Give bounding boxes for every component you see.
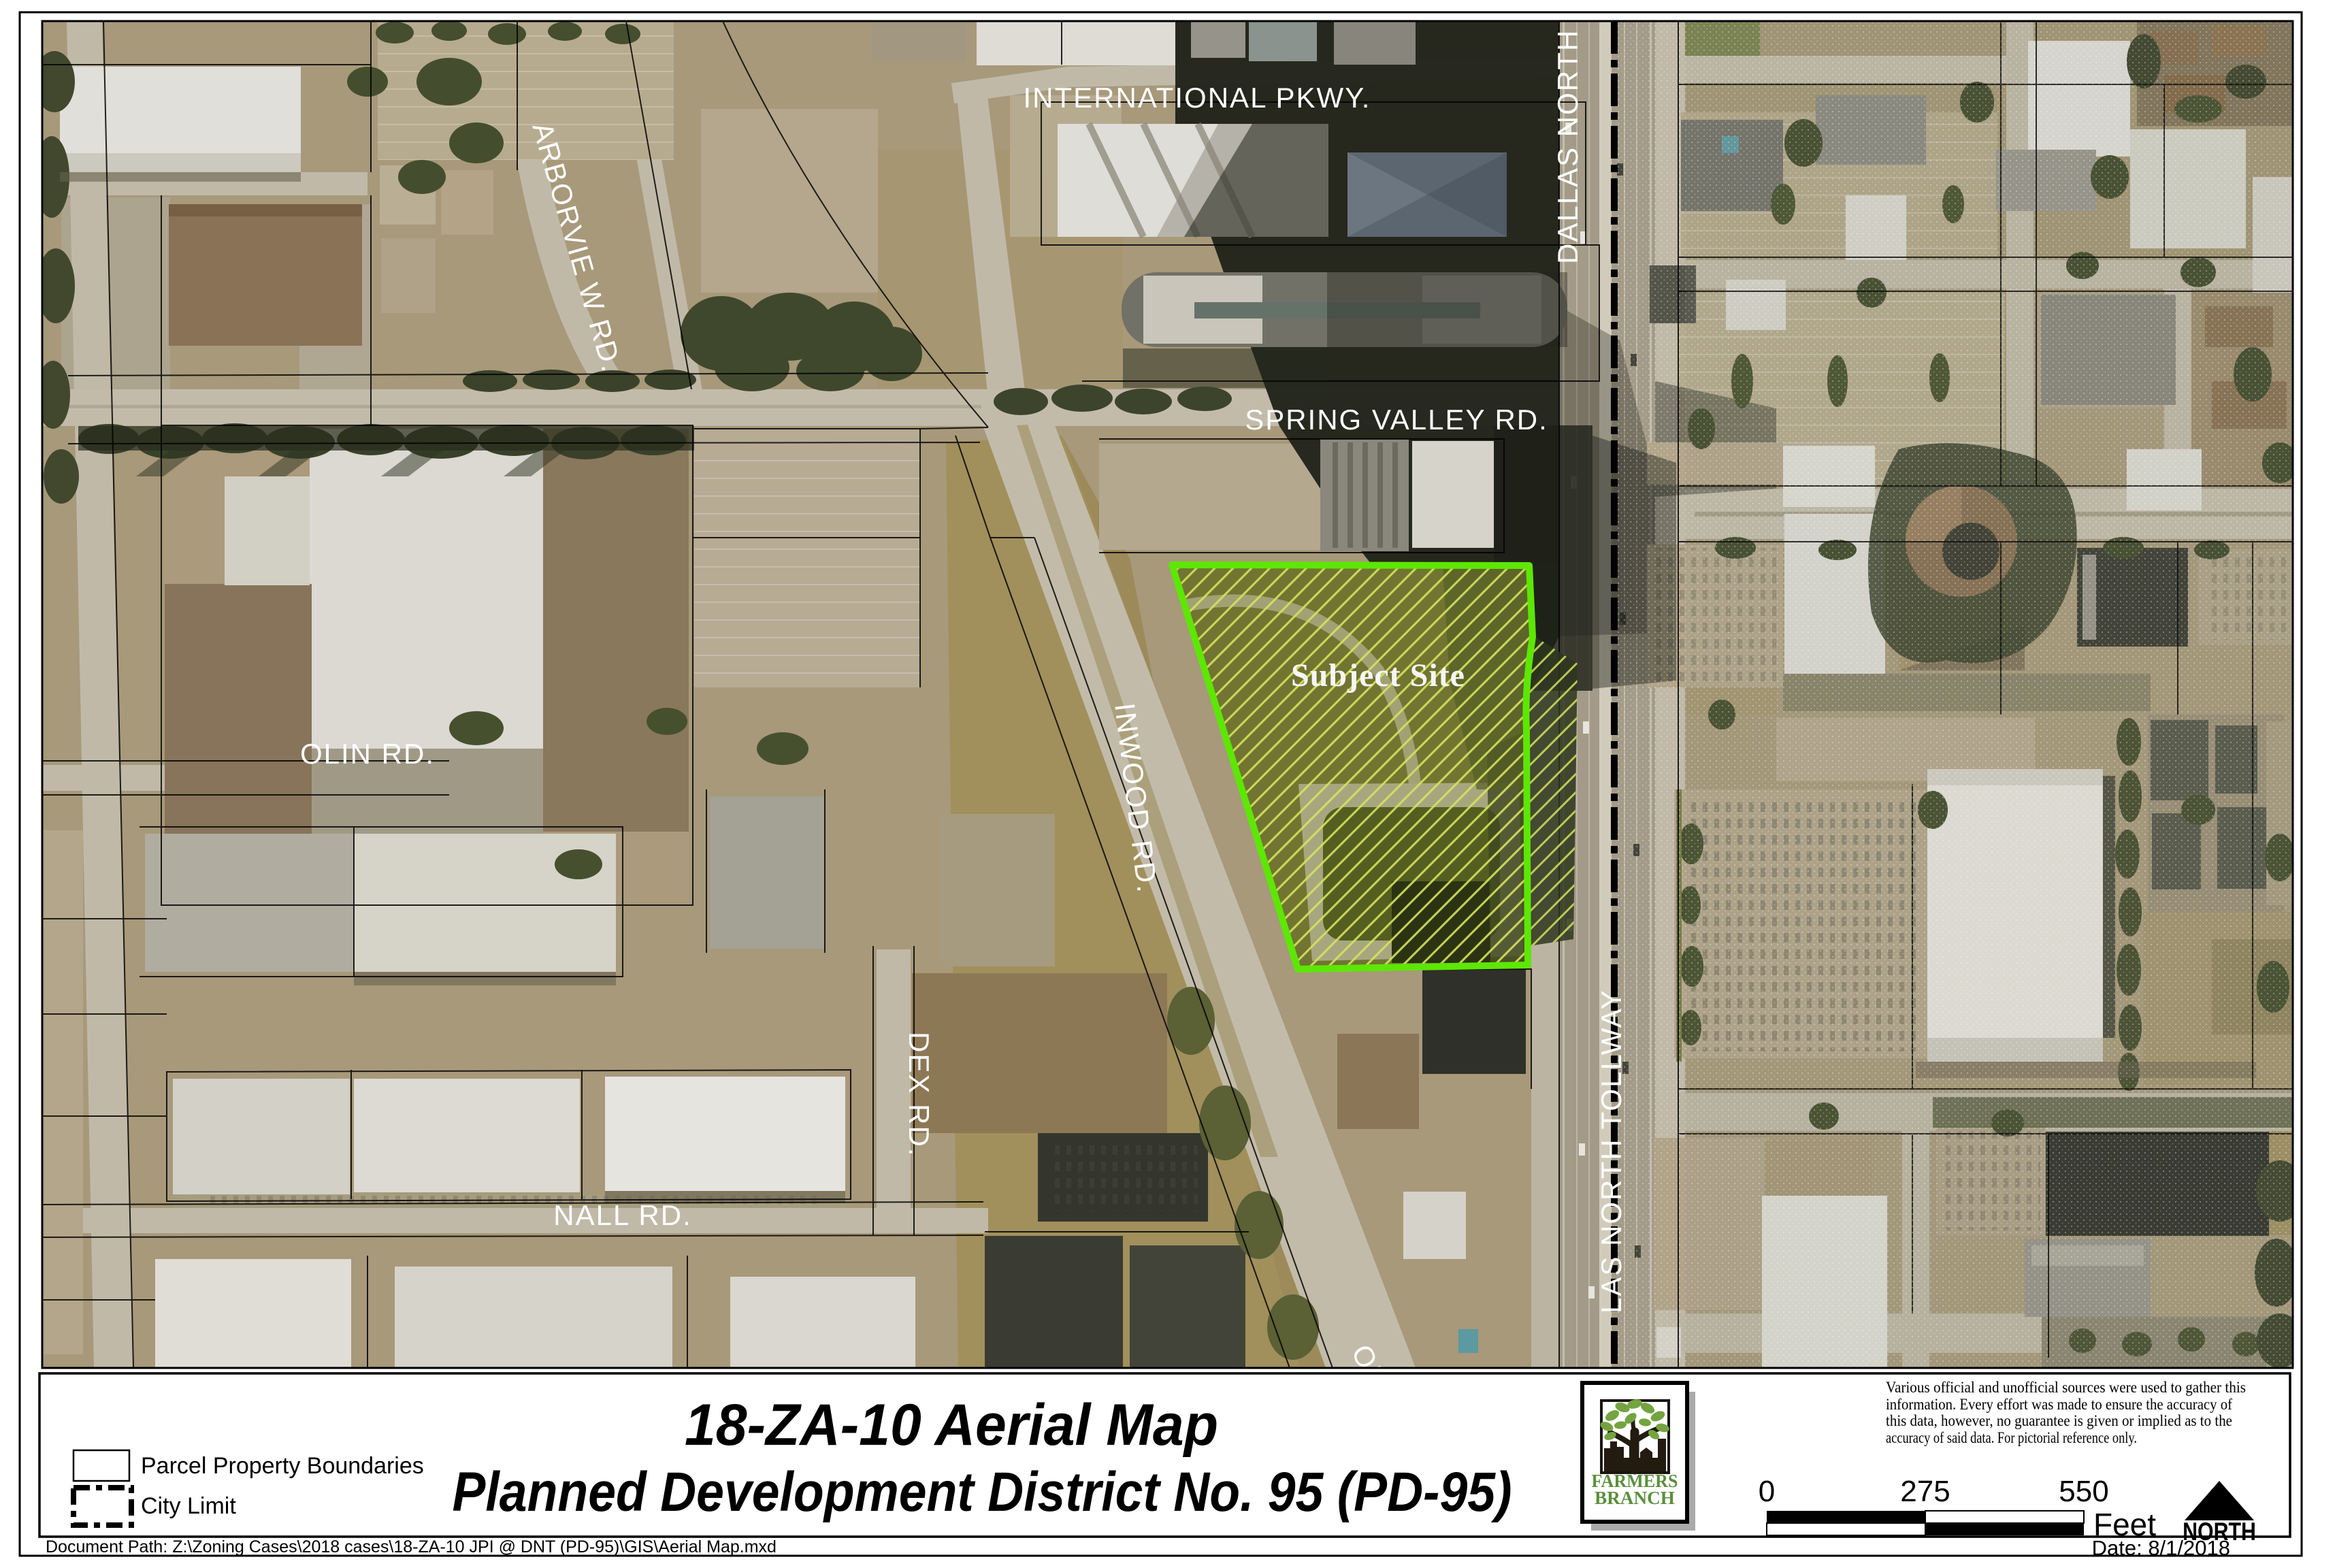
svg-text:NALL RD.: NALL RD. — [553, 1199, 692, 1231]
svg-text:550: 550 — [2059, 1475, 2108, 1508]
svg-text:18-ZA-10 Aerial Map: 18-ZA-10 Aerial Map — [685, 1392, 1218, 1458]
svg-text:Document Path: Z:\Zoning Cases: Document Path: Z:\Zoning Cases\2018 case… — [46, 1537, 777, 1556]
svg-text:OLIN RD.: OLIN RD. — [300, 738, 435, 770]
svg-text:Various official and unofficia: Various official and unofficial sources … — [1886, 1379, 2246, 1396]
svg-text:this data, however, no guarant: this data, however, no guarantee is give… — [1886, 1412, 2232, 1429]
svg-text:BRANCH: BRANCH — [1595, 1488, 1675, 1508]
svg-text:DEX RD.: DEX RD. — [903, 1032, 935, 1157]
svg-text:INTERNATIONAL PKWY.: INTERNATIONAL PKWY. — [1024, 82, 1371, 114]
svg-text:Date: 8/1/2018: Date: 8/1/2018 — [2092, 1536, 2230, 1560]
svg-text:City Limit: City Limit — [141, 1493, 236, 1519]
svg-text:Parcel Property Boundaries: Parcel Property Boundaries — [141, 1453, 424, 1479]
svg-text:SPRING VALLEY RD.: SPRING VALLEY RD. — [1245, 404, 1548, 436]
svg-text:accuracy of said data. For pi: accuracy of said data. For pictorial ref… — [1886, 1429, 2137, 1446]
svg-text:275: 275 — [1900, 1475, 1950, 1508]
svg-text:Planned Development District N: Planned Development District No. 95 (PD-… — [453, 1461, 1512, 1523]
svg-text:information. Every effort was: information. Every effort was made to en… — [1886, 1396, 2232, 1413]
svg-text:DALLAS NORTH T: DALLAS NORTH T — [1552, 1, 1584, 264]
svg-text:LAS NORTH TOLLWAY: LAS NORTH TOLLWAY — [1595, 989, 1627, 1313]
svg-text:0: 0 — [1759, 1475, 1775, 1508]
